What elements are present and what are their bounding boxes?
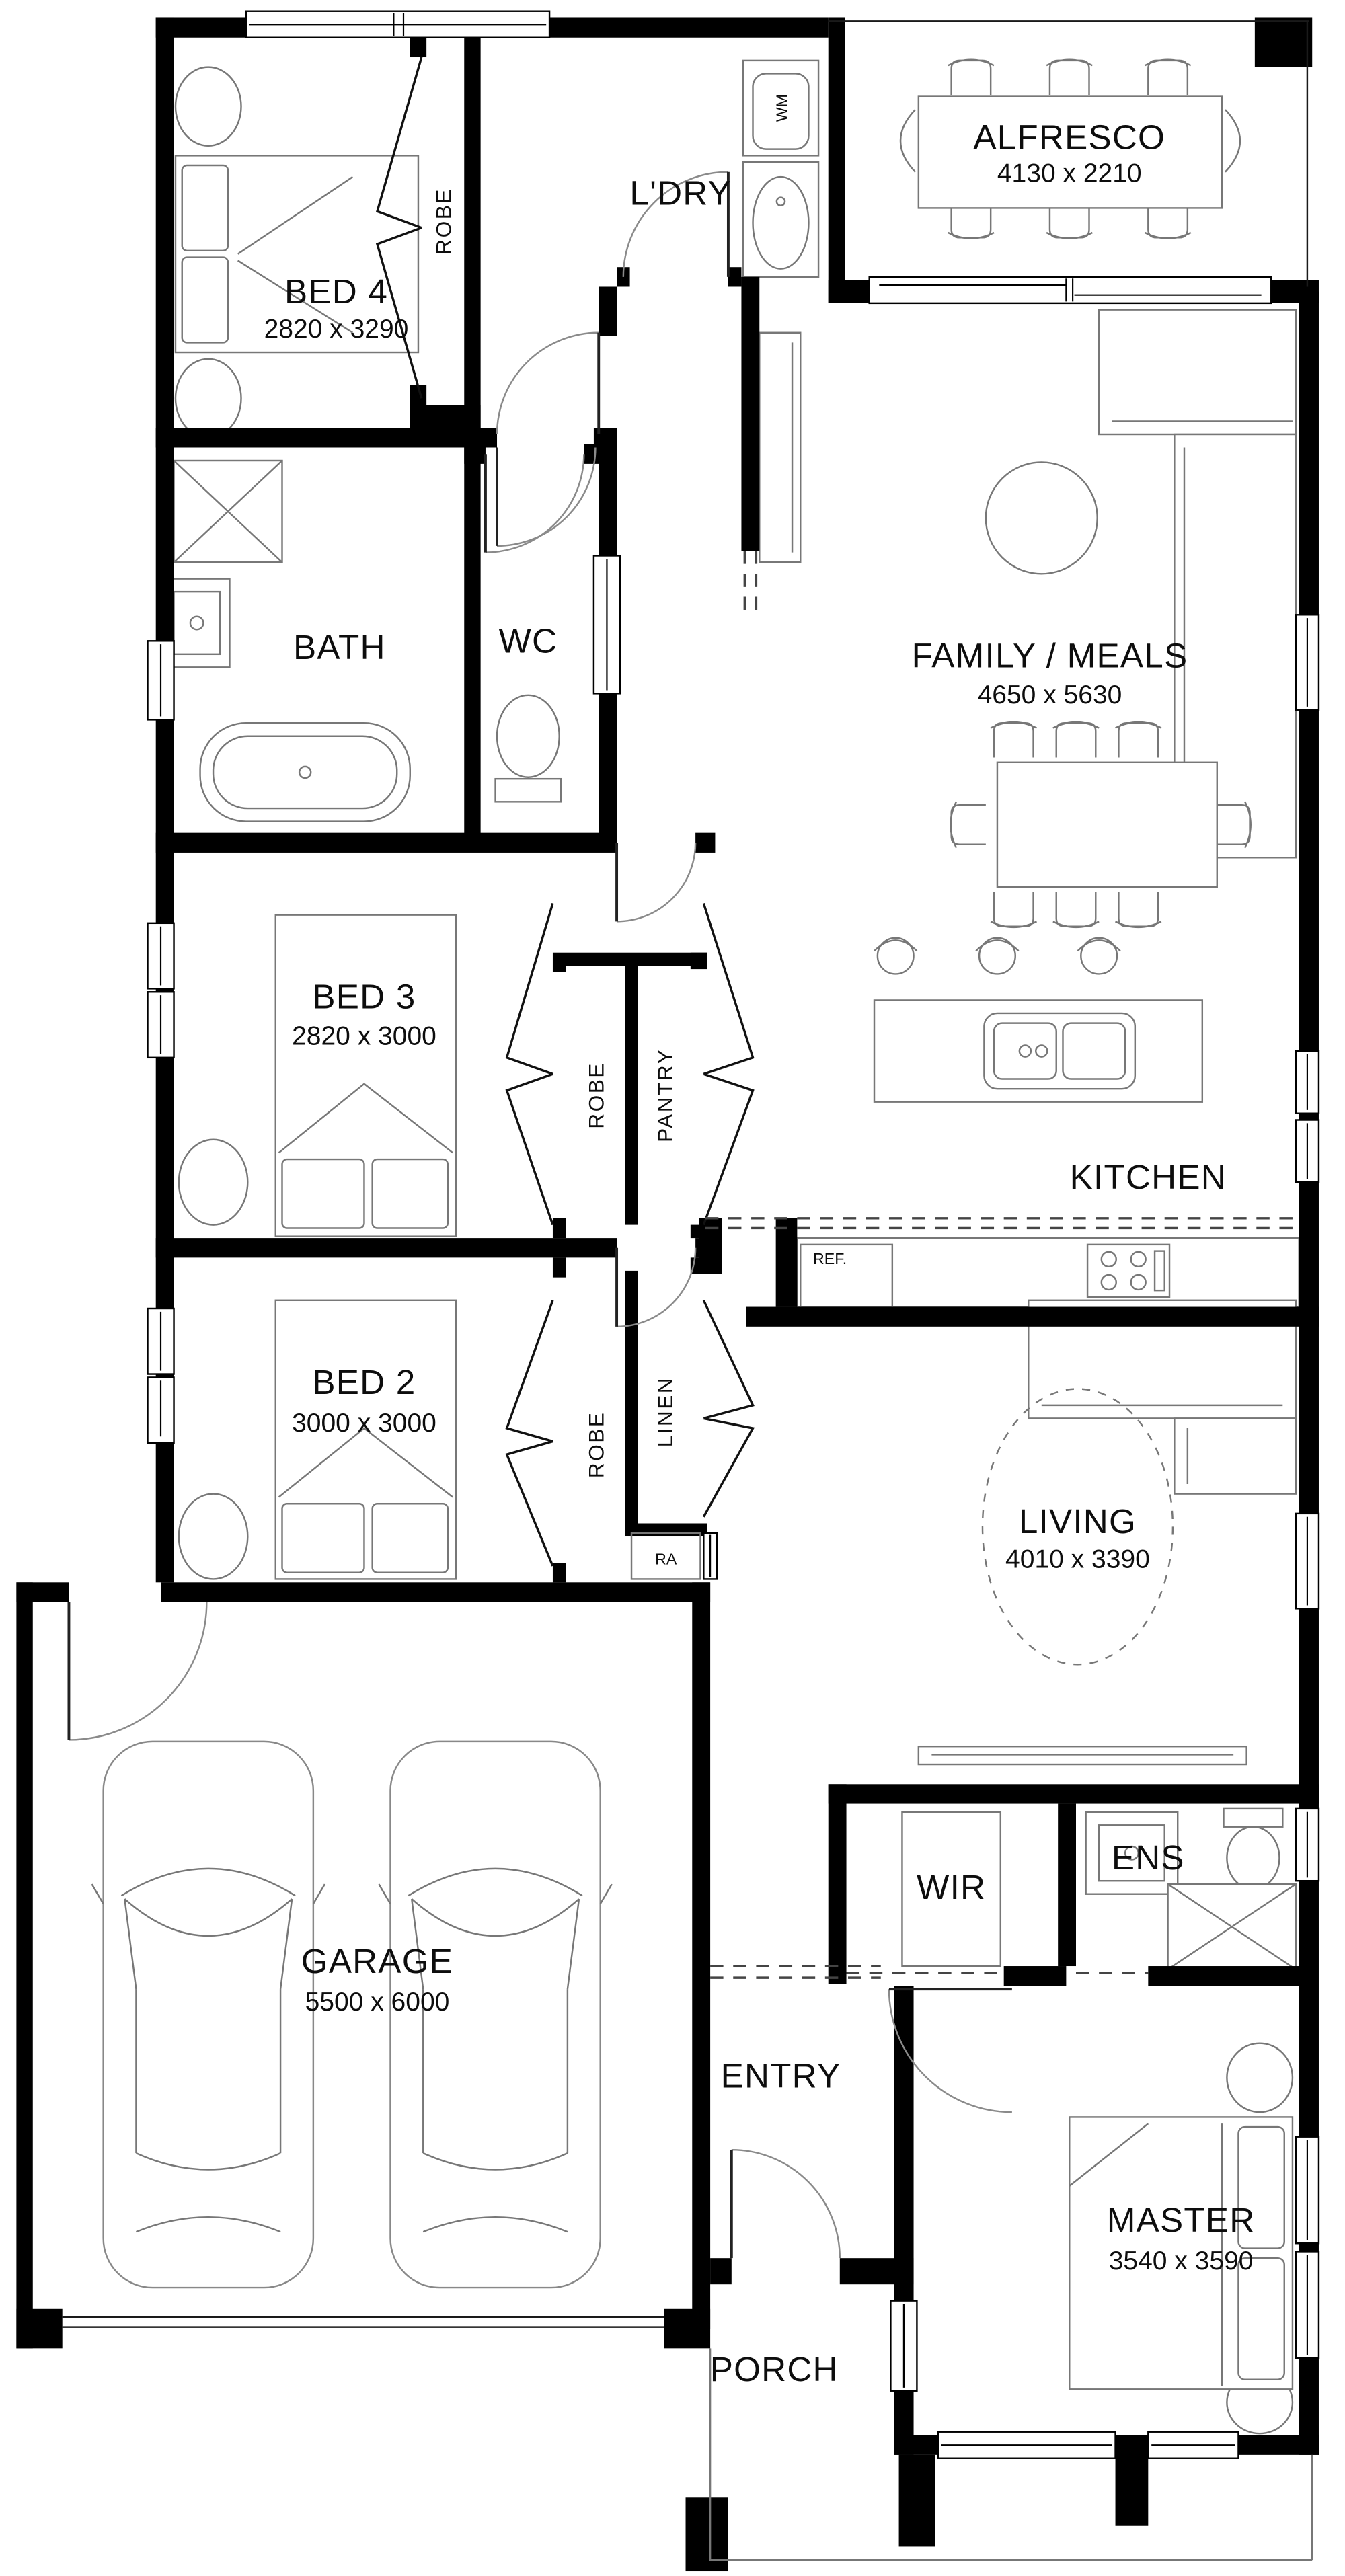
linen-label: LINEN	[653, 1376, 677, 1448]
island-bench-icon	[874, 1000, 1202, 1101]
kitchen-furniture	[797, 938, 1299, 1307]
window-bed3-1	[148, 923, 174, 989]
window-master-2	[1296, 2251, 1319, 2358]
window-master-bottom-2	[1148, 2432, 1238, 2458]
family-label: FAMILY / MEALS	[912, 636, 1188, 674]
window-bed4-top	[246, 11, 549, 38]
robe-bed3-label: ROBE	[584, 1062, 609, 1129]
floor-plan-page: BED 4 2820 x 3290 ROBE L'DRY WM ALFRESCO…	[0, 0, 1345, 2576]
family-dims: 4650 x 5630	[978, 680, 1122, 709]
cabinet-icon	[759, 333, 800, 562]
ra-grille	[703, 1533, 717, 1579]
bifold-robe-bed2	[507, 1300, 553, 1566]
hall-family-opening	[744, 551, 756, 611]
door-garage	[69, 1602, 206, 1740]
wm-label: WM	[773, 94, 791, 122]
sliding-door-alfresco	[870, 277, 1272, 303]
bed-icon	[276, 915, 456, 1237]
bifold-linen	[703, 1300, 753, 1517]
toilet-icon	[497, 695, 560, 777]
wc-furniture	[496, 695, 562, 802]
window-living	[1296, 1514, 1319, 1608]
window-bath	[148, 641, 174, 719]
alfresco-label: ALFRESCO	[973, 118, 1165, 157]
laundry-furniture	[743, 61, 818, 277]
living-label: LIVING	[1019, 1502, 1137, 1540]
bed-icon	[276, 1300, 456, 1579]
window-kitchen-2	[1296, 1120, 1319, 1183]
garage-dims: 5500 x 6000	[305, 1988, 450, 2017]
robe-bed4-label: ROBE	[432, 188, 456, 255]
hall-niche	[594, 555, 620, 693]
bed3-dims: 2820 x 3000	[292, 1021, 436, 1050]
bed4-dims: 2820 x 3290	[264, 315, 409, 344]
bed3-furniture	[179, 915, 456, 1237]
bath-label: BATH	[293, 628, 386, 666]
window-kitchen-1	[1296, 1051, 1319, 1114]
ens-furniture	[1086, 1809, 1296, 1969]
window-bed3-2	[148, 992, 174, 1058]
alfresco-dims: 4130 x 2210	[997, 159, 1142, 188]
porch-label: PORCH	[710, 2350, 839, 2388]
window-ens	[1296, 1809, 1319, 1881]
garage-label: GARAGE	[301, 1942, 453, 1980]
window-porch	[890, 2301, 917, 2391]
wir-label: WIR	[917, 1868, 986, 1906]
bed2-label: BED 2	[312, 1363, 416, 1401]
bathtub-icon	[200, 723, 410, 821]
ens-label: ENS	[1112, 1838, 1185, 1877]
living-dims: 4010 x 3390	[1005, 1545, 1150, 1573]
family-furniture	[759, 310, 1296, 927]
rug-icon	[986, 462, 1098, 574]
door-bed3	[617, 843, 695, 921]
car-icon	[92, 1742, 325, 2288]
dining-table-icon	[997, 763, 1217, 887]
entry-label: ENTRY	[721, 2057, 841, 2095]
window-family	[1296, 615, 1319, 709]
toilet-icon	[1224, 1809, 1283, 1827]
bed4-label: BED 4	[284, 272, 388, 311]
laundry-tub-icon	[743, 162, 818, 277]
kitchen-label: KITCHEN	[1070, 1158, 1227, 1196]
window-master-bottom-1	[938, 2432, 1115, 2458]
robe-bed2-label: ROBE	[584, 1411, 609, 1479]
window-bed2-1	[148, 1309, 174, 1374]
sofa-icon	[1099, 310, 1296, 434]
bifold-robe-bed3	[507, 904, 553, 1225]
ra-label: RA	[655, 1550, 677, 1567]
pantry-label: PANTRY	[653, 1048, 677, 1142]
window-bed2-2	[148, 1377, 174, 1443]
window-master-1	[1296, 2137, 1319, 2244]
master-dims: 3540 x 3590	[1109, 2247, 1254, 2275]
bifold-pantry	[703, 904, 753, 1225]
bed2-dims: 3000 x 3000	[292, 1409, 436, 1438]
master-label: MASTER	[1107, 2201, 1256, 2239]
ref-label: REF.	[813, 1250, 847, 1267]
bed3-label: BED 3	[312, 978, 416, 1016]
wc-label: WC	[498, 621, 558, 660]
bed4-furniture	[176, 67, 418, 438]
door-bed4	[497, 333, 599, 434]
laundry-label: L'DRY	[629, 174, 732, 212]
bench-icon	[797, 1238, 1299, 1306]
door-front	[732, 2150, 840, 2258]
floor-plan: BED 4 2820 x 3290 ROBE L'DRY WM ALFRESCO…	[0, 0, 1345, 2576]
bed2-furniture	[179, 1300, 456, 1579]
